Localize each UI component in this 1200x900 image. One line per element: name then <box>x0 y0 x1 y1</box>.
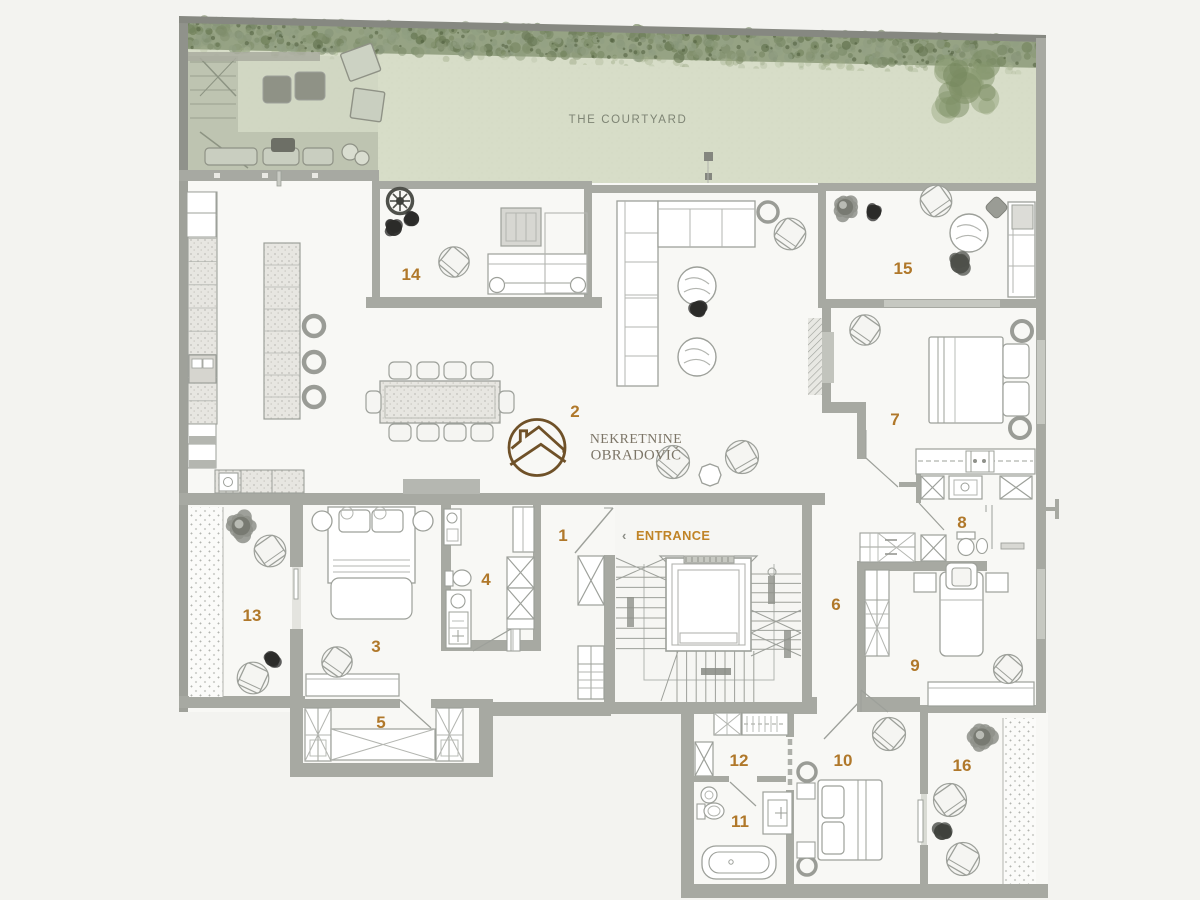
svg-text:12: 12 <box>730 751 749 770</box>
svg-text:THE COURTYARD: THE COURTYARD <box>569 114 688 126</box>
svg-text:ENTRANCE: ENTRANCE <box>636 528 710 543</box>
svg-text:3: 3 <box>371 637 380 656</box>
svg-text:5: 5 <box>376 713 385 732</box>
svg-text:‹: ‹ <box>622 528 626 543</box>
svg-text:OBRADOVIĆ: OBRADOVIĆ <box>591 447 682 464</box>
svg-text:11: 11 <box>731 812 749 831</box>
svg-text:13: 13 <box>243 606 262 625</box>
svg-text:4: 4 <box>481 570 491 589</box>
svg-text:15: 15 <box>894 259 913 278</box>
svg-text:2: 2 <box>570 402 579 421</box>
svg-text:6: 6 <box>831 595 840 614</box>
svg-text:1: 1 <box>558 526 567 545</box>
svg-text:16: 16 <box>953 756 972 775</box>
svg-text:10: 10 <box>834 751 853 770</box>
svg-text:14: 14 <box>402 265 421 284</box>
svg-text:8: 8 <box>957 513 966 532</box>
svg-text:7: 7 <box>890 410 899 429</box>
svg-text:9: 9 <box>910 656 919 675</box>
svg-text:NEKRETNINE: NEKRETNINE <box>590 431 682 446</box>
